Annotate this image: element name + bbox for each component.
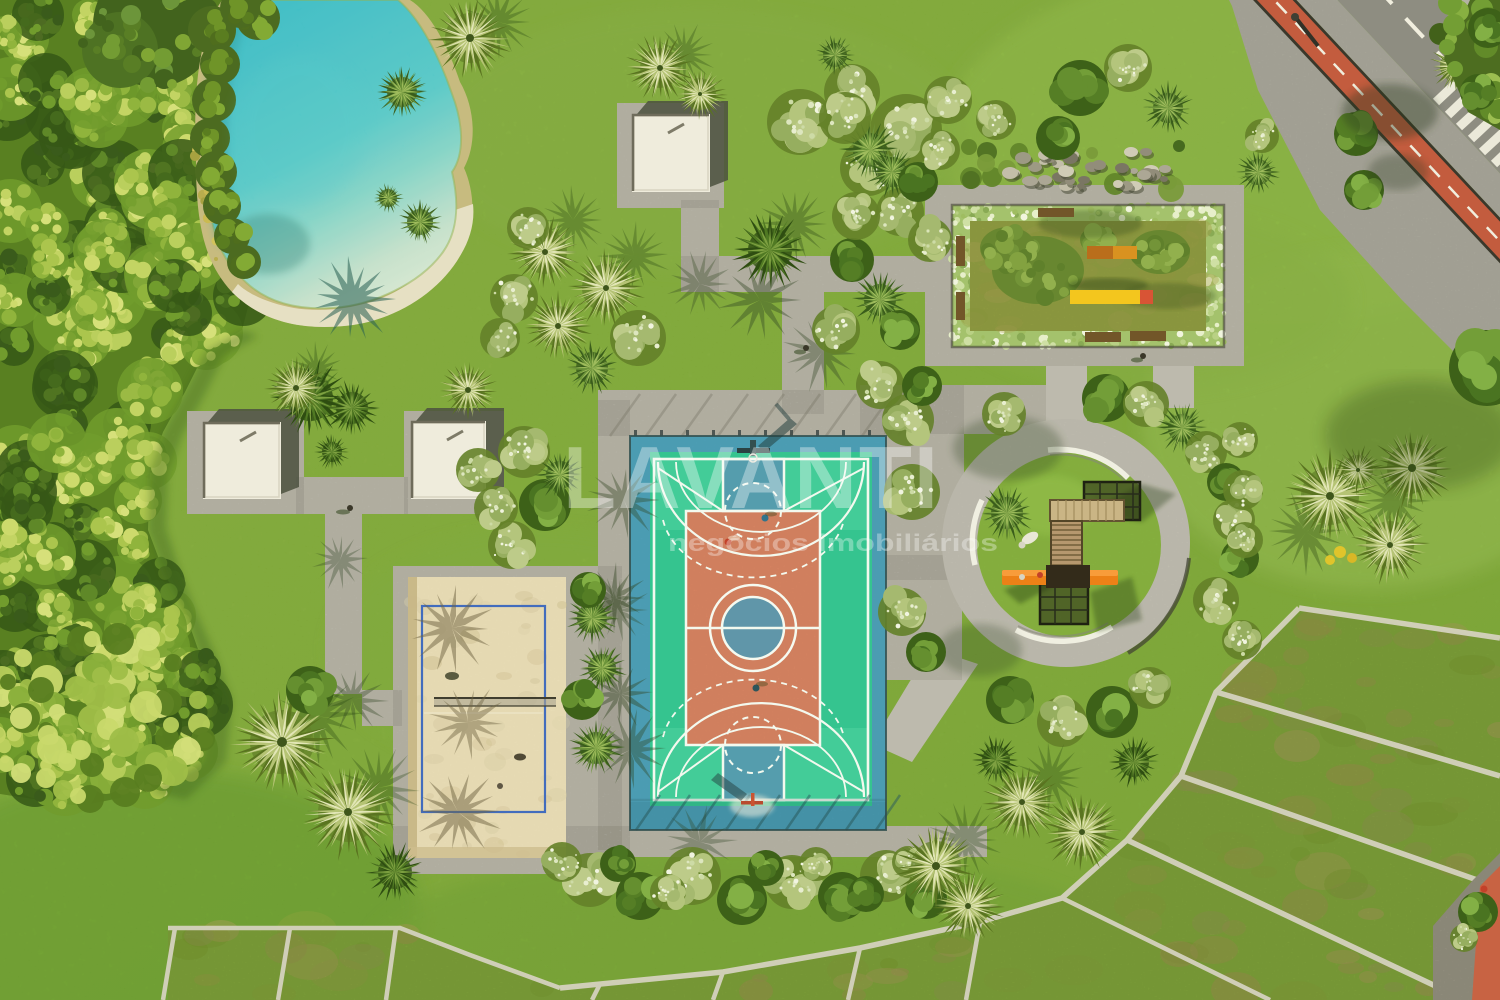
svg-text:LAVANTI: LAVANTI — [563, 428, 940, 527]
svg-text:negócios imobiliários: negócios imobiliários — [668, 530, 998, 557]
